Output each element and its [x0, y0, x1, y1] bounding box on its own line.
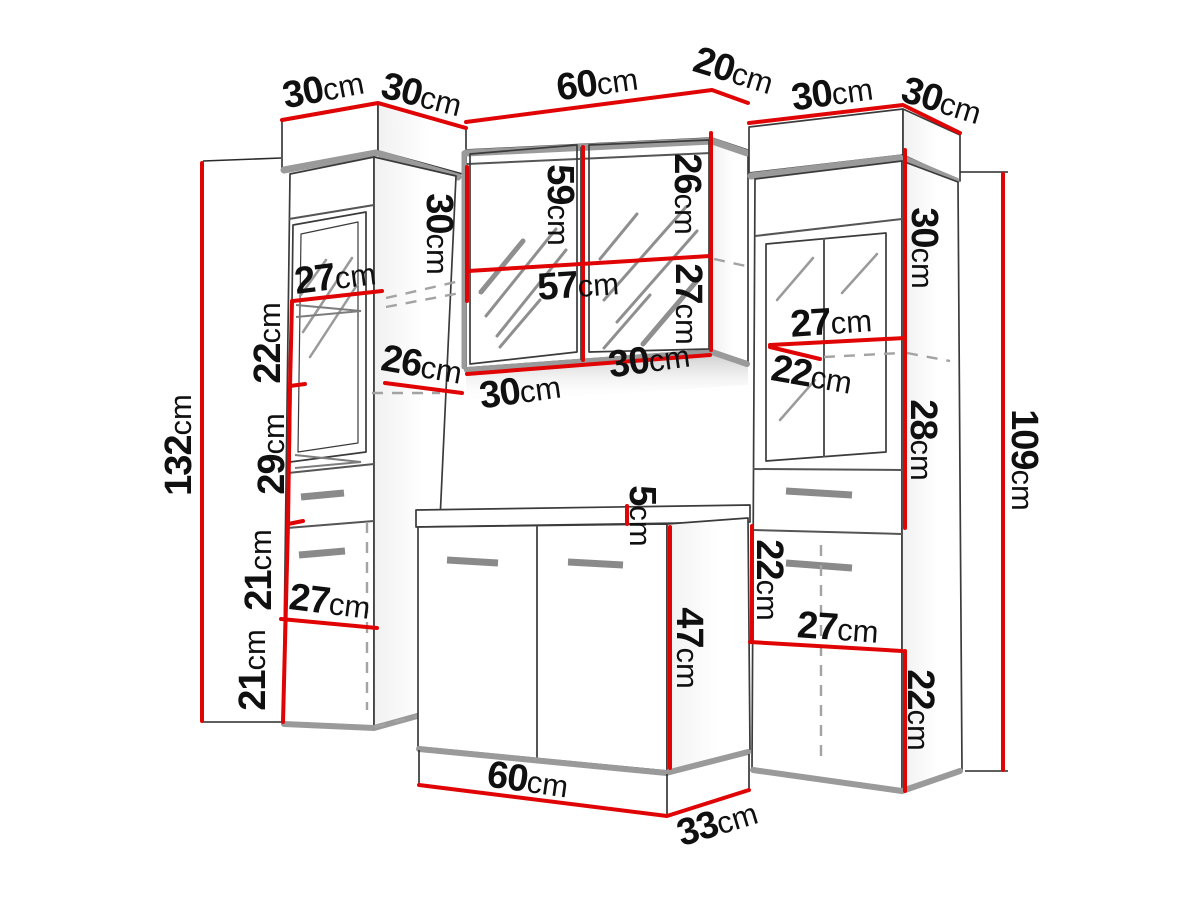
dim-label-vanity-height: 47cm [668, 607, 710, 689]
right-cabinet-front [752, 161, 902, 790]
vanity-door-right-handle [568, 562, 623, 565]
left-cabinet-door-handle [299, 551, 345, 555]
dim-label-right-shelf-top: 27cm [789, 298, 873, 346]
dim-label-left-middle-gap: 29cm [251, 413, 293, 495]
furniture-dimension-diagram: 30cm 30cm 60cm 20cm 30cm 30cm 132cm 27cm… [0, 0, 1200, 900]
dim-label-left-upper-gap: 22cm [247, 302, 289, 384]
dim-label-left-lower-gap-a: 21cm [238, 529, 280, 611]
dim-label-mirror-top-offset: 30cm [418, 193, 460, 275]
dim-label-right-height: 109cm [1003, 409, 1045, 511]
left-cabinet-drawer-handle [301, 493, 344, 497]
dim-label-mirror-lower-section: 27cm [667, 263, 709, 345]
diagram-root: 30cm 30cm 60cm 20cm 30cm 30cm 132cm 27cm… [0, 0, 1200, 900]
vanity-door-left-handle [447, 560, 498, 563]
dim-label-mirror-depth: 20cm [689, 39, 779, 103]
mirror-cabinet-side [712, 138, 748, 362]
dim-label-left-height: 132cm [158, 394, 200, 496]
dim-label-right-drawer-gap: 22cm [748, 539, 790, 621]
left-cabinet-front [283, 157, 374, 727]
dim-label-mirror-height: 59cm [539, 164, 581, 246]
right-cabinet-drawer-handle [786, 491, 852, 495]
right-cabinet-door-handle [786, 563, 852, 568]
dim-label-right-lower-gap: 22cm [899, 669, 941, 751]
dim-label-right-upper-section: 30cm [903, 207, 945, 289]
dim-label-countertop: 5cm [621, 485, 663, 546]
dim-label-left-lower-gap-b: 21cm [232, 629, 274, 711]
dim-label-mirror-inner-width: 57cm [536, 261, 620, 309]
dim-label-right-middle-section: 28cm [902, 399, 944, 481]
dim-label-mirror-upper-section: 26cm [666, 153, 708, 235]
